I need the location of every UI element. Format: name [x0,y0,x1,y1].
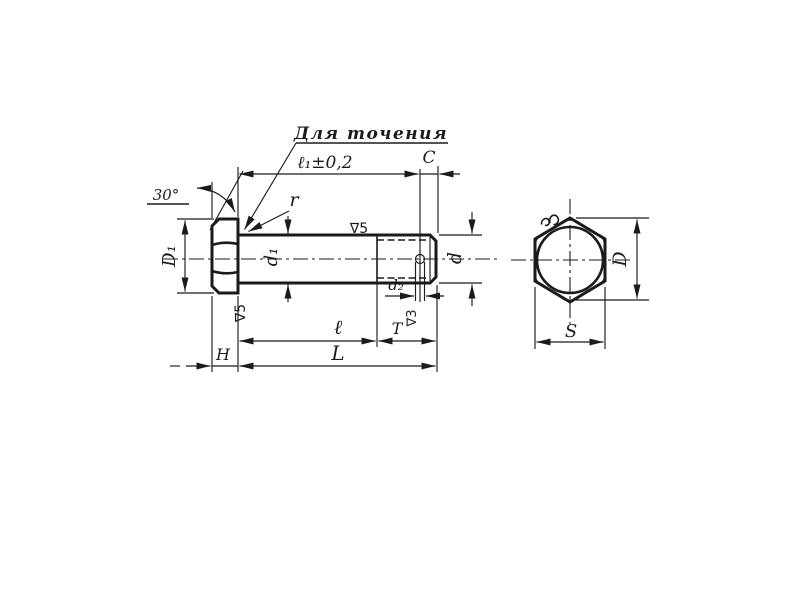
dim-label-d1: d₁ [261,248,282,267]
hex-end-view: D S [511,199,649,349]
corner-squiggle-mark [541,215,558,225]
technical-drawing-canvas: Для точения ℓ₁±0,2 C 30° r D₁ d₁ d d₂ ℓ … [0,0,800,600]
dim-label-angle: 30° [153,186,180,204]
front-view: Для точения ℓ₁±0,2 C 30° r D₁ d₁ d d₂ ℓ … [147,124,497,372]
fillet-radius-leader [249,211,290,232]
callout-for-turning-label: Для точения [293,124,448,144]
angle-arc-30deg [197,188,235,212]
head-facet-line-upper [212,243,238,245]
dim-label-d2: d₂ [388,276,404,294]
bolt-head-outline [212,219,238,293]
surface-finish-mark-head: ∇5 [233,304,249,323]
surface-finish-mark-shank: ∇5 [349,221,368,237]
dim-label-D1: D₁ [159,245,180,268]
head-facet-line-lower [212,271,238,273]
dim-label-l1: ℓ₁±0,2 [297,153,352,173]
dim-label-L: L [330,341,344,365]
surface-finish-mark-thread: ∇3 [405,310,420,328]
dim-label-S: S [565,321,577,342]
bolt-head-facet-lines [212,243,238,274]
dim-label-c: C [422,148,435,168]
dim-label-T: T [392,319,404,338]
dimension-lines [170,174,472,366]
dim-label-D: D [609,251,631,267]
drawing-sheet: Для точения ℓ₁±0,2 C 30° r D₁ d₁ d d₂ ℓ … [0,0,800,600]
dim-label-H: H [215,345,231,364]
dim-label-r: r [289,189,300,211]
dim-label-l: ℓ [334,315,343,339]
dim-label-d: d [444,252,466,264]
